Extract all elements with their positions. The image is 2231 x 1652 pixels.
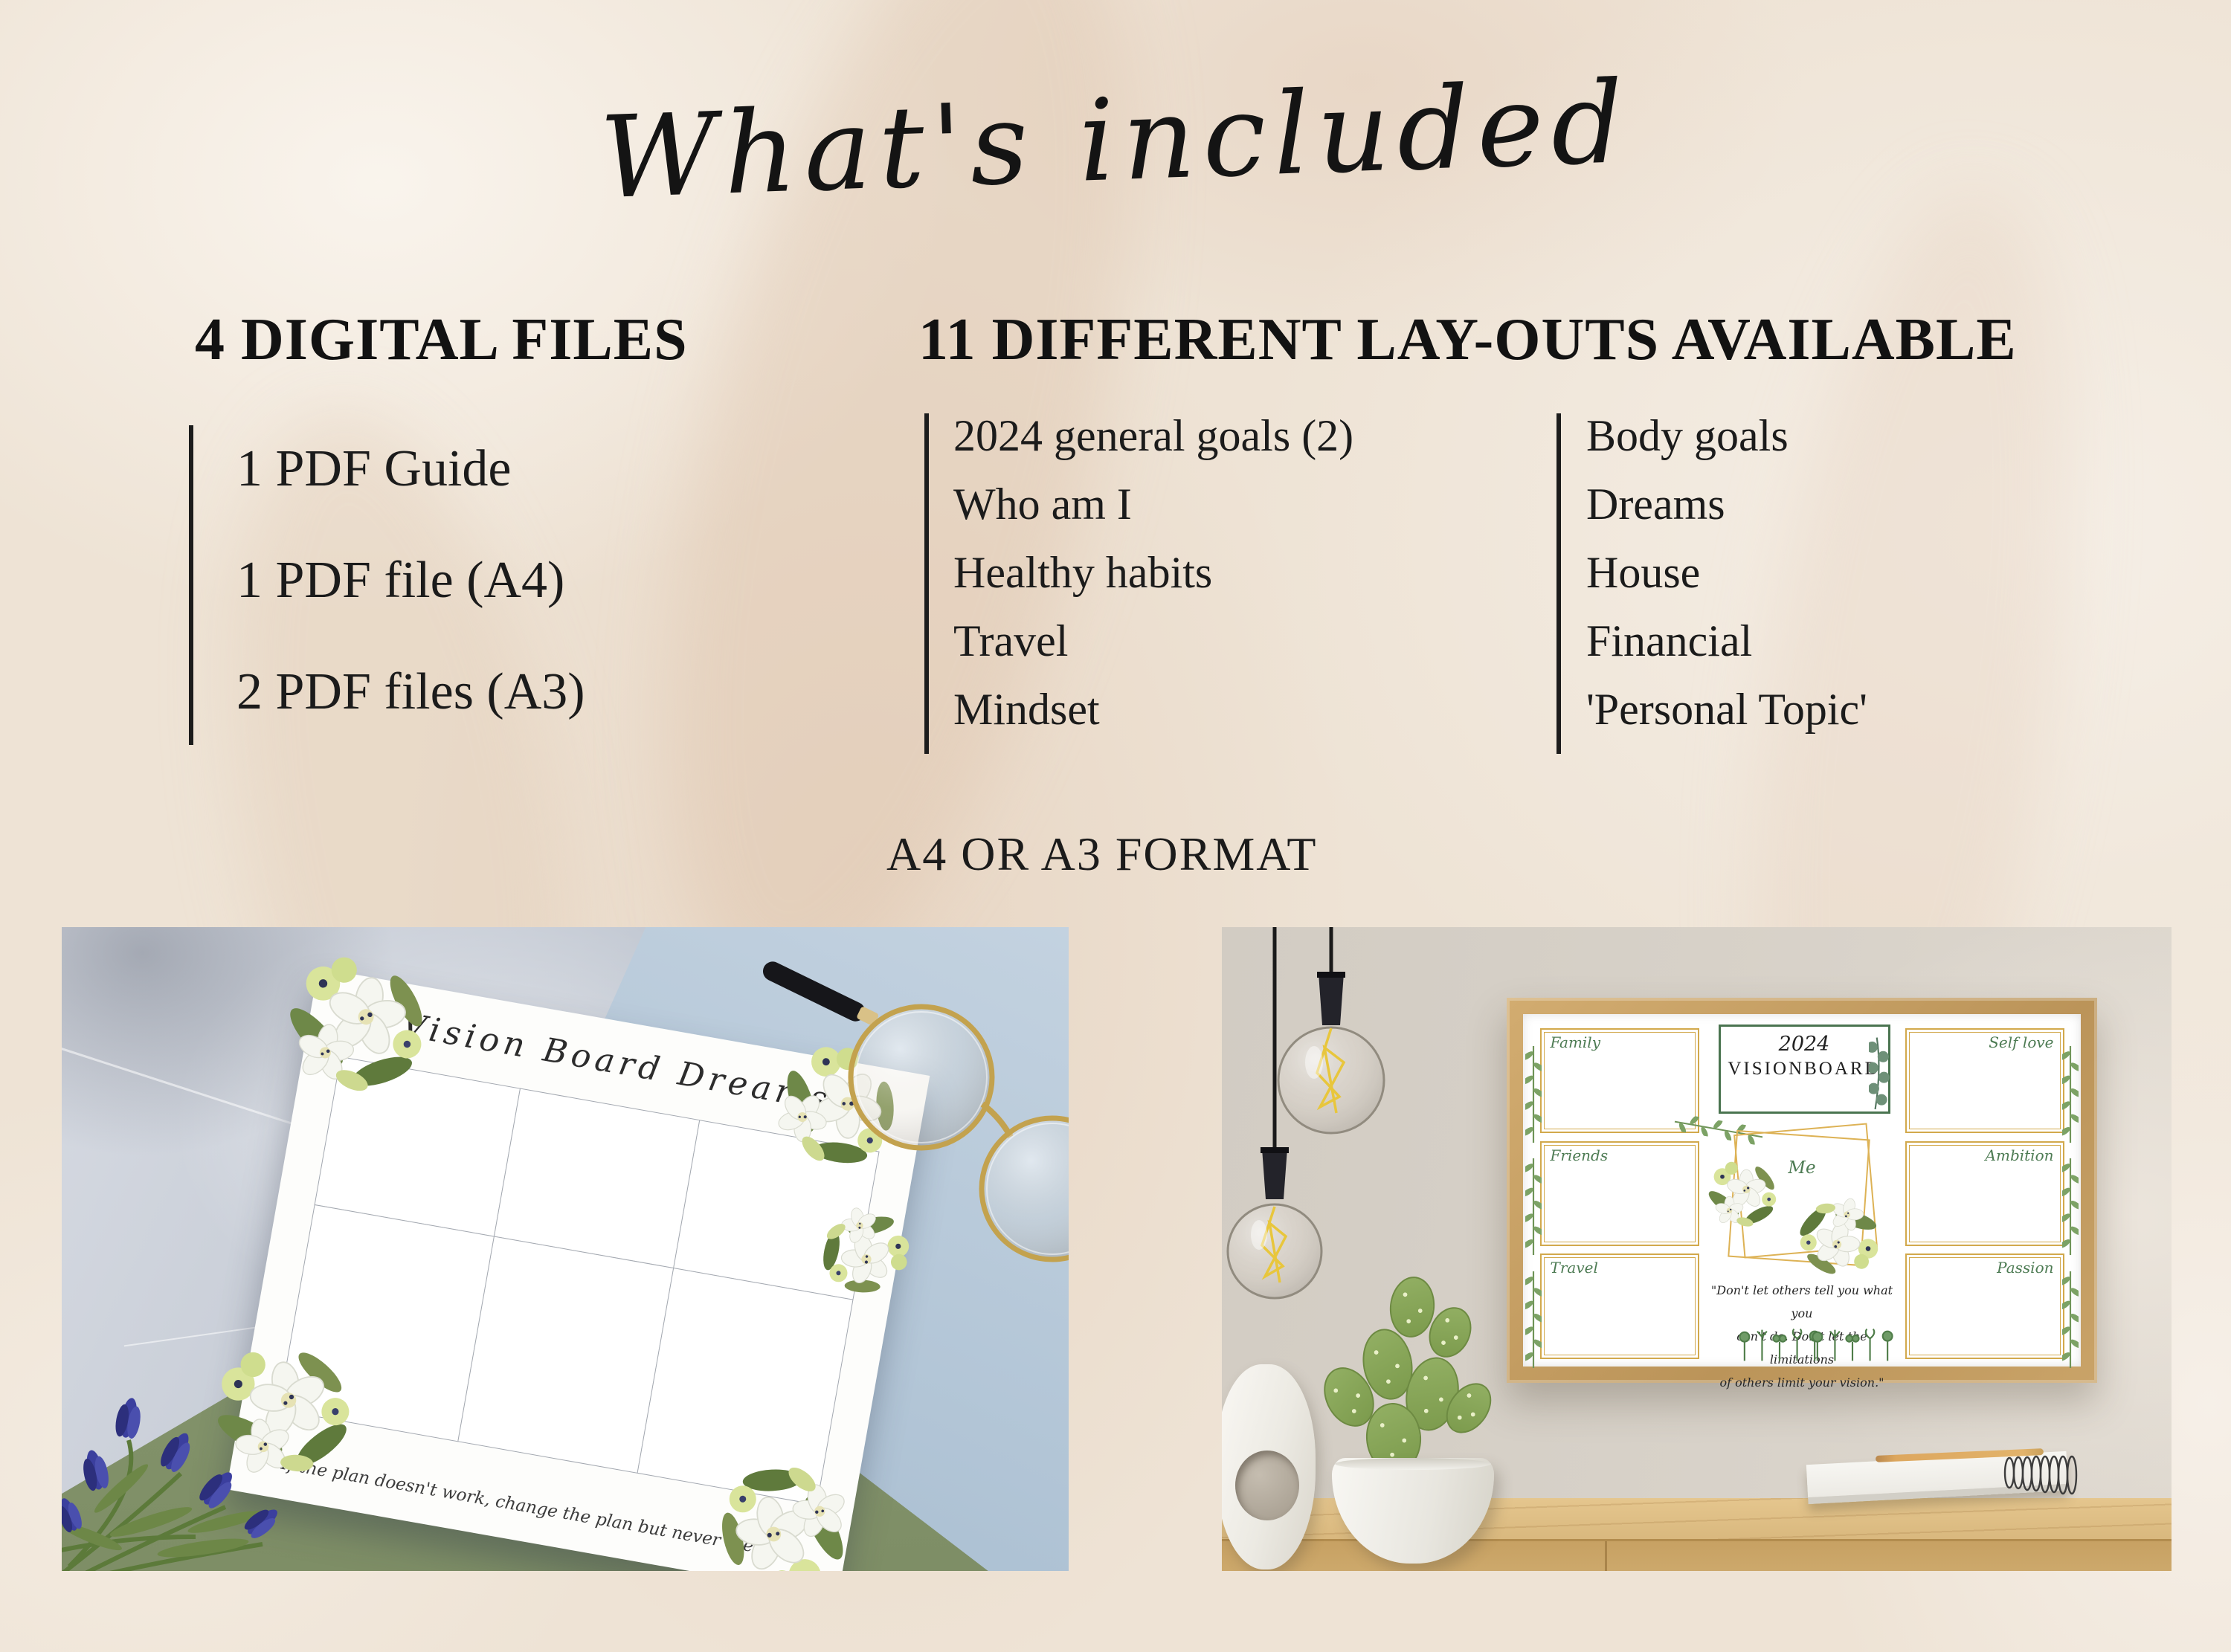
pot-rim bbox=[1335, 1458, 1491, 1470]
botanical-sketch-icon bbox=[1808, 1329, 1897, 1363]
poster-year: 2024 bbox=[1721, 1033, 1888, 1056]
poster-box-passion: Passion bbox=[1905, 1253, 2064, 1358]
promo-graphic: What's included 4 DIGITAL FILES 1 PDF Gu… bbox=[0, 0, 2231, 1652]
list-item: 2 PDF files (A3) bbox=[236, 636, 585, 748]
list-item: House bbox=[1586, 538, 1867, 607]
donut-vase bbox=[1222, 1364, 1316, 1569]
poster-box-ambition: Ambition bbox=[1905, 1141, 2064, 1246]
poster-box-me: Me bbox=[1719, 1120, 1886, 1268]
drawer-seam bbox=[1605, 1541, 1607, 1571]
files-heading: 4 DIGITAL FILES bbox=[195, 306, 688, 374]
spiral-binding-icon bbox=[2003, 1451, 2085, 1500]
list-item: Who am I bbox=[953, 470, 1353, 538]
layouts-column-1: 2024 general goals (2) Who am I Healthy … bbox=[953, 401, 1353, 743]
list-item: Financial bbox=[1586, 607, 1867, 675]
format-note: A4 OR A3 FORMAT bbox=[886, 827, 1317, 882]
list-item: 1 PDF file (A4) bbox=[236, 525, 585, 636]
quote-line: "Don't let others tell you what you bbox=[1707, 1279, 1897, 1325]
list-item: 'Personal Topic' bbox=[1586, 675, 1867, 743]
section-label: Passion bbox=[1997, 1259, 2053, 1277]
list-item: Healthy habits bbox=[953, 538, 1353, 607]
layouts-heading: 11 DIFFERENT LAY-OUTS AVAILABLE bbox=[918, 306, 2017, 374]
list-item: 2024 general goals (2) bbox=[953, 401, 1353, 470]
list-item: 1 PDF Guide bbox=[236, 413, 585, 525]
floral-corner-icon bbox=[277, 943, 441, 1106]
eucalyptus-icon bbox=[1869, 1035, 1891, 1117]
section-label: Travel bbox=[1551, 1259, 1598, 1277]
section-label: Ambition bbox=[1986, 1146, 2054, 1164]
eyeglasses-icon bbox=[716, 927, 1069, 1314]
visionboard-poster: Family Friends Travel Self love Ambition… bbox=[1523, 1014, 2081, 1367]
left-photo-vision-board-mockup: Vision Board Dreams "If the plan doesn't… bbox=[62, 927, 1069, 1571]
poster-title: VISIONBOARD bbox=[1721, 1059, 1888, 1080]
quote-line: of others limit your vision." bbox=[1707, 1371, 1897, 1394]
spiral-notebook bbox=[1807, 1452, 2099, 1501]
layouts-col2-divider-bar bbox=[1556, 413, 1561, 754]
section-label: Family bbox=[1551, 1033, 1601, 1051]
files-list: 1 PDF Guide 1 PDF file (A4) 2 PDF files … bbox=[236, 413, 585, 748]
leaf-vine-icon bbox=[1525, 1271, 1542, 1368]
list-item: Travel bbox=[953, 607, 1353, 675]
blue-flowers-icon bbox=[62, 1299, 456, 1571]
leaf-vine-icon bbox=[1525, 1158, 1542, 1255]
poster-title-box: 2024 VISIONBOARD bbox=[1719, 1025, 1890, 1114]
wooden-frame: Family Friends Travel Self love Ambition… bbox=[1507, 998, 2097, 1383]
list-item: Body goals bbox=[1586, 401, 1867, 470]
leaf-vine-icon bbox=[2062, 1271, 2079, 1368]
list-item: Dreams bbox=[1586, 470, 1867, 538]
cactus-plant bbox=[1319, 1277, 1512, 1470]
poster-box-friends: Friends bbox=[1540, 1141, 1699, 1246]
leaf-vine-icon bbox=[1525, 1046, 1542, 1143]
grid-cell bbox=[457, 1236, 674, 1473]
section-label: Self love bbox=[1989, 1033, 2053, 1051]
layouts-col1-divider-bar bbox=[924, 413, 929, 754]
poster-box-travel: Travel bbox=[1540, 1253, 1699, 1358]
leaf-vine-icon bbox=[2062, 1046, 2079, 1143]
list-item: Mindset bbox=[953, 675, 1353, 743]
files-divider-bar bbox=[189, 425, 193, 745]
layouts-column-2: Body goals Dreams House Financial 'Perso… bbox=[1586, 401, 1867, 743]
hanging-bulb-icon bbox=[1222, 927, 1338, 1314]
leaf-vine-icon bbox=[2062, 1158, 2079, 1255]
right-photo-framed-visionboard: Family Friends Travel Self love Ambition… bbox=[1222, 927, 2172, 1571]
poster-box-self-love: Self love bbox=[1905, 1028, 2064, 1133]
section-label: Friends bbox=[1551, 1146, 1609, 1164]
vase-hole bbox=[1235, 1451, 1299, 1520]
white-flowers-icon bbox=[1708, 1158, 1779, 1229]
